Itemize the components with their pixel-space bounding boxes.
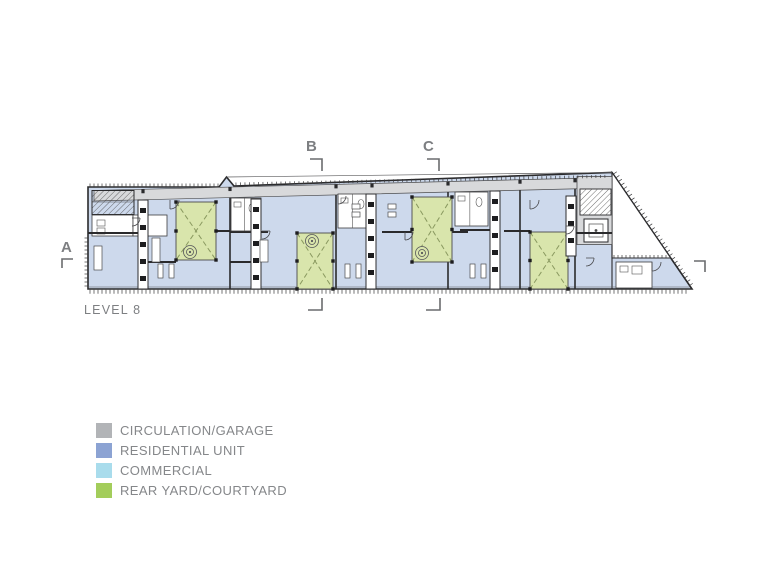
- level-label: LEVEL 8: [84, 304, 141, 317]
- circulation-label: CIRCULATION/GARAGE: [120, 424, 274, 437]
- legend-row-circulation: CIRCULATION/GARAGE: [96, 423, 287, 438]
- legend-row-rear-yard: REAR YARD/COURTYARD: [96, 483, 287, 498]
- section-a-right-bracket: [694, 261, 705, 272]
- residential-swatch: [96, 443, 112, 458]
- legend-row-commercial: COMMERCIAL: [96, 463, 287, 478]
- section-c-bottom-bracket: [426, 298, 440, 310]
- circulation-swatch: [96, 423, 112, 438]
- stair-core-right: [577, 177, 612, 245]
- section-marker-c: C: [423, 139, 434, 154]
- rear-yard-label: REAR YARD/COURTYARD: [120, 484, 287, 497]
- section-b-top-bracket: [310, 159, 322, 171]
- rear-yard-swatch: [96, 483, 112, 498]
- legend: CIRCULATION/GARAGE RESIDENTIAL UNIT COMM…: [96, 423, 287, 503]
- section-c-top-bracket: [427, 159, 439, 171]
- residential-label: RESIDENTIAL UNIT: [120, 444, 245, 457]
- section-marker-a: A: [61, 240, 72, 255]
- legend-row-residential: RESIDENTIAL UNIT: [96, 443, 287, 458]
- section-b-bottom-bracket: [308, 298, 322, 310]
- section-marker-b: B: [306, 139, 317, 154]
- commercial-label: COMMERCIAL: [120, 464, 212, 477]
- floor-plan-sheet: A B C LEVEL 8 CIRCULATION/GARAGE RESIDEN…: [0, 0, 780, 585]
- section-a-left-bracket: [62, 259, 73, 268]
- commercial-swatch: [96, 463, 112, 478]
